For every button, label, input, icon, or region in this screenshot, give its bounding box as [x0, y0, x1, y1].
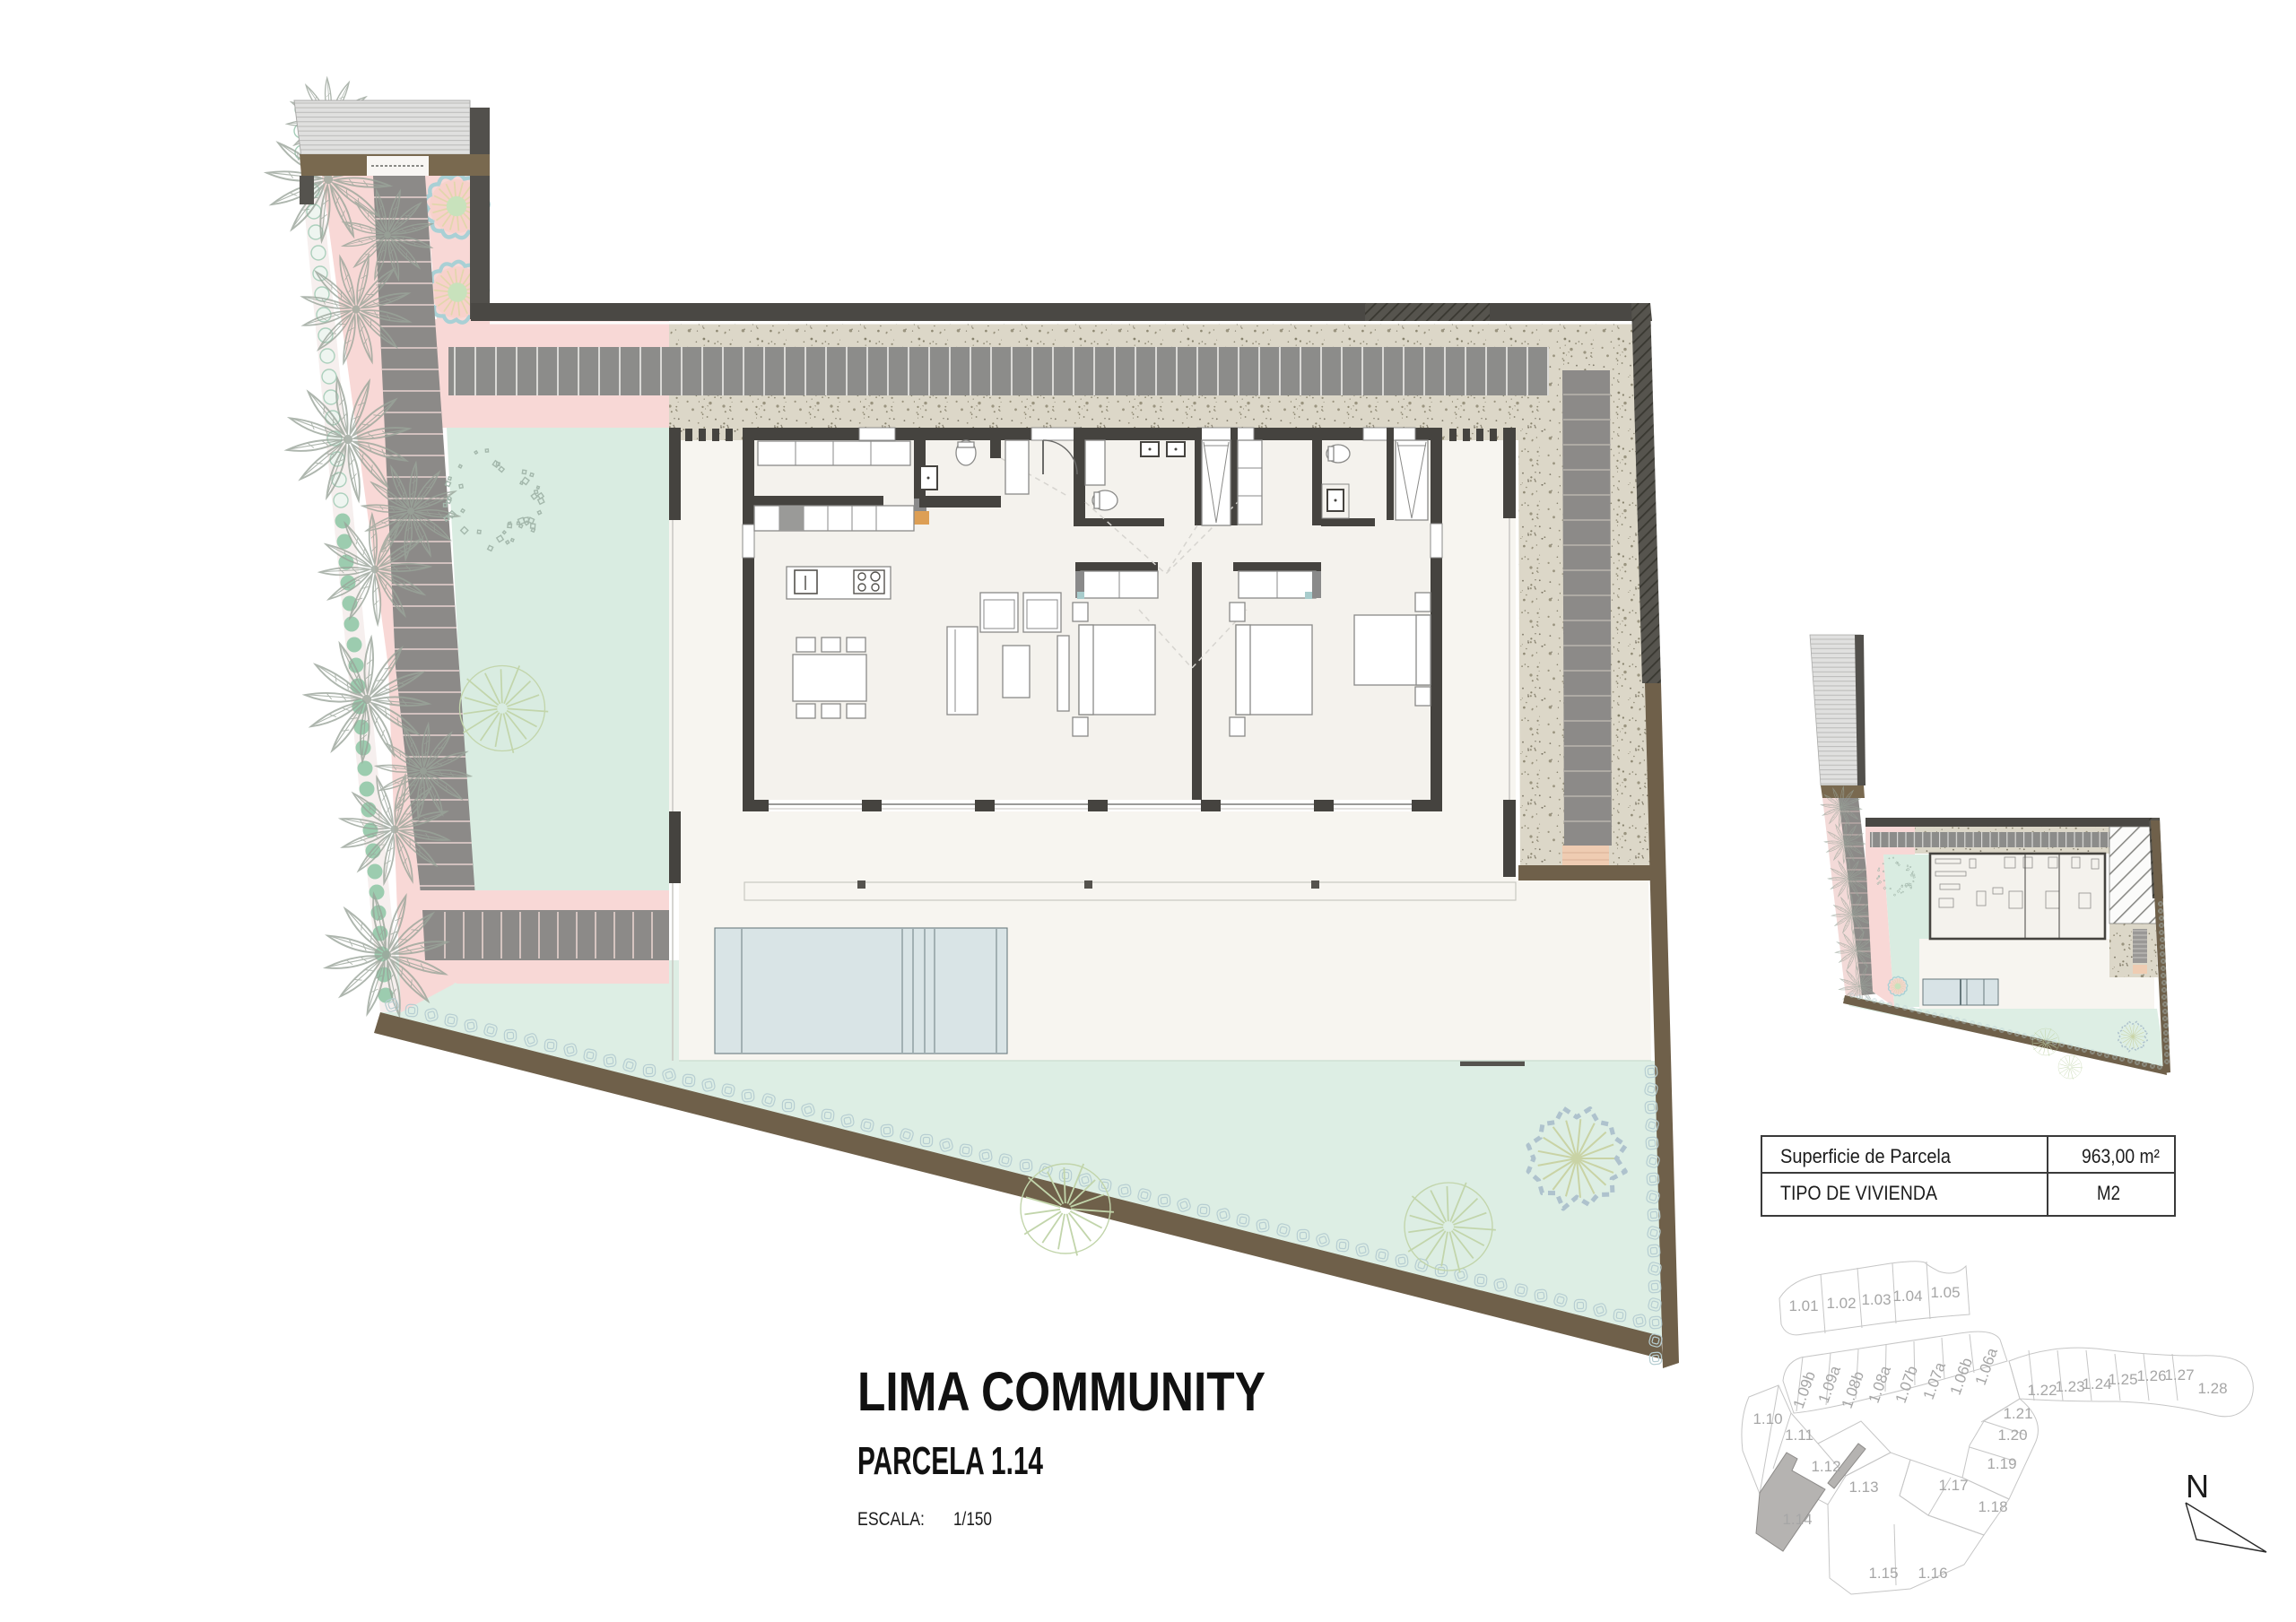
- svg-text:M2: M2: [2097, 1182, 2120, 1204]
- svg-text:1.11: 1.11: [1785, 1427, 1813, 1444]
- svg-text:1.17: 1.17: [1938, 1477, 1968, 1494]
- svg-text:1.10: 1.10: [1752, 1410, 1782, 1427]
- svg-text:1.27: 1.27: [2164, 1366, 2194, 1383]
- svg-text:ESCALA:: ESCALA:: [857, 1509, 925, 1530]
- svg-text:1.20: 1.20: [1997, 1427, 2027, 1444]
- svg-text:1.25: 1.25: [2108, 1371, 2137, 1388]
- svg-text:1.04: 1.04: [1892, 1288, 1922, 1305]
- svg-text:1.18: 1.18: [1978, 1498, 2007, 1515]
- svg-text:1.28: 1.28: [2197, 1380, 2227, 1397]
- svg-text:1.12: 1.12: [1811, 1458, 1840, 1475]
- svg-text:1.14: 1.14: [1782, 1511, 1812, 1528]
- svg-text:1.02: 1.02: [1826, 1295, 1856, 1312]
- svg-text:LIMA COMMUNITY: LIMA COMMUNITY: [857, 1361, 1265, 1422]
- svg-text:1.23: 1.23: [2055, 1378, 2084, 1395]
- svg-text:1/150: 1/150: [953, 1509, 992, 1530]
- svg-text:1.19: 1.19: [1987, 1455, 2016, 1472]
- svg-text:1.16: 1.16: [1918, 1565, 1947, 1582]
- svg-text:1.03: 1.03: [1861, 1291, 1891, 1308]
- svg-text:1.26: 1.26: [2136, 1367, 2166, 1384]
- svg-text:963,00 m²: 963,00 m²: [2082, 1145, 2160, 1167]
- svg-text:N: N: [2186, 1468, 2209, 1505]
- svg-text:1.13: 1.13: [1848, 1479, 1878, 1496]
- svg-text:1.01: 1.01: [1788, 1297, 1818, 1314]
- svg-text:Superficie de Parcela: Superficie de Parcela: [1780, 1145, 1952, 1167]
- svg-text:PARCELA 1.14: PARCELA 1.14: [857, 1439, 1043, 1483]
- svg-text:TIPO DE VIVIENDA: TIPO DE VIVIENDA: [1780, 1182, 1937, 1204]
- svg-text:1.05: 1.05: [1930, 1284, 1960, 1301]
- svg-text:1.21: 1.21: [2003, 1405, 2032, 1422]
- svg-text:1.22: 1.22: [2027, 1382, 2057, 1399]
- svg-text:1.15: 1.15: [1868, 1565, 1898, 1582]
